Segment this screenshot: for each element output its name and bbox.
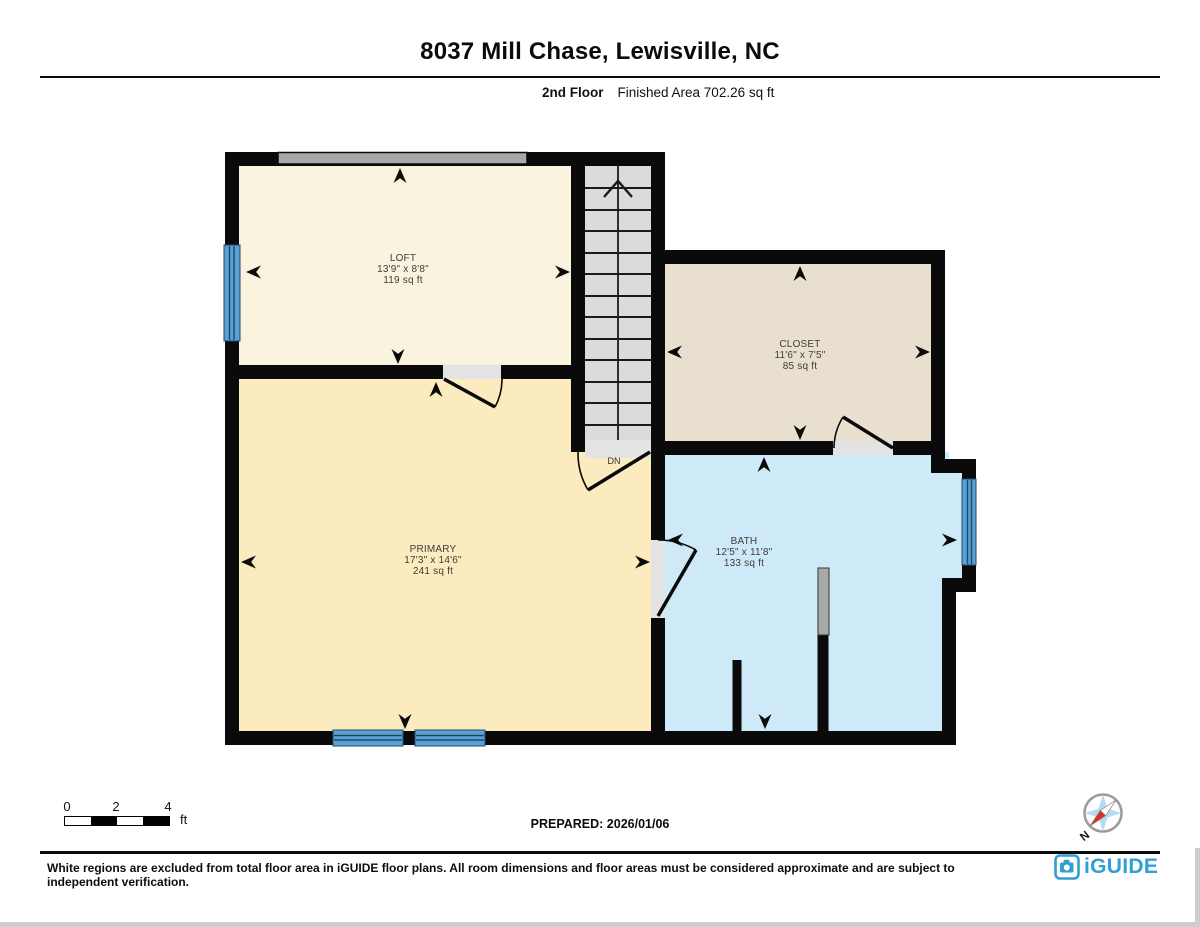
camera-icon xyxy=(1054,854,1080,880)
loft-name: LOFT xyxy=(390,253,416,264)
loft-door-opening xyxy=(443,365,501,379)
bath-area: 133 sq ft xyxy=(724,558,764,569)
bath-dims: 12'5" x 11'8" xyxy=(716,547,773,558)
primary-window-right xyxy=(415,730,485,746)
loft-dims: 13'9" x 8'8" xyxy=(377,264,429,275)
footer-divider xyxy=(40,851,1160,854)
right-edge-shadow xyxy=(1195,848,1200,927)
loft-knee-wall xyxy=(278,153,527,165)
primary-name: PRIMARY xyxy=(410,544,457,555)
primary-area: 241 sq ft xyxy=(413,566,453,577)
room-bath xyxy=(658,452,949,738)
scale-tick-0: 0 xyxy=(60,799,74,814)
scale-tick-4: 4 xyxy=(161,799,175,814)
primary-dims: 17'3" x 14'6" xyxy=(404,555,462,566)
bath-bay-window xyxy=(962,479,976,565)
bath-name: BATH xyxy=(731,536,758,547)
closet-area: 85 sq ft xyxy=(783,361,817,372)
primary-window-left xyxy=(333,730,403,746)
prepared-date-label: PREPARED: 2026/01/06 xyxy=(0,817,1200,831)
floor-plan: LOFT 13'9" x 8'8" 119 sq ft CLOSET 11'6"… xyxy=(0,0,1200,927)
bath-glass-panel xyxy=(818,568,829,635)
closet-dims: 11'6" x 7'5" xyxy=(775,350,826,361)
stairs-down-label: DN xyxy=(608,456,621,466)
compass-north-label: N xyxy=(1078,829,1092,844)
scale-tick-2: 2 xyxy=(109,799,123,814)
page-sheet: 8037 Mill Chase, Lewisville, NC 2nd Floo… xyxy=(0,0,1200,927)
iguide-logo: iGUIDE xyxy=(1054,854,1158,880)
disclaimer-text: White regions are excluded from total fl… xyxy=(47,861,1027,889)
loft-area: 119 sq ft xyxy=(383,275,422,286)
closet-name: CLOSET xyxy=(779,339,820,350)
bottom-edge-shadow xyxy=(0,922,1200,927)
iguide-logo-text: iGUIDE xyxy=(1084,855,1158,879)
loft-window xyxy=(224,245,240,341)
